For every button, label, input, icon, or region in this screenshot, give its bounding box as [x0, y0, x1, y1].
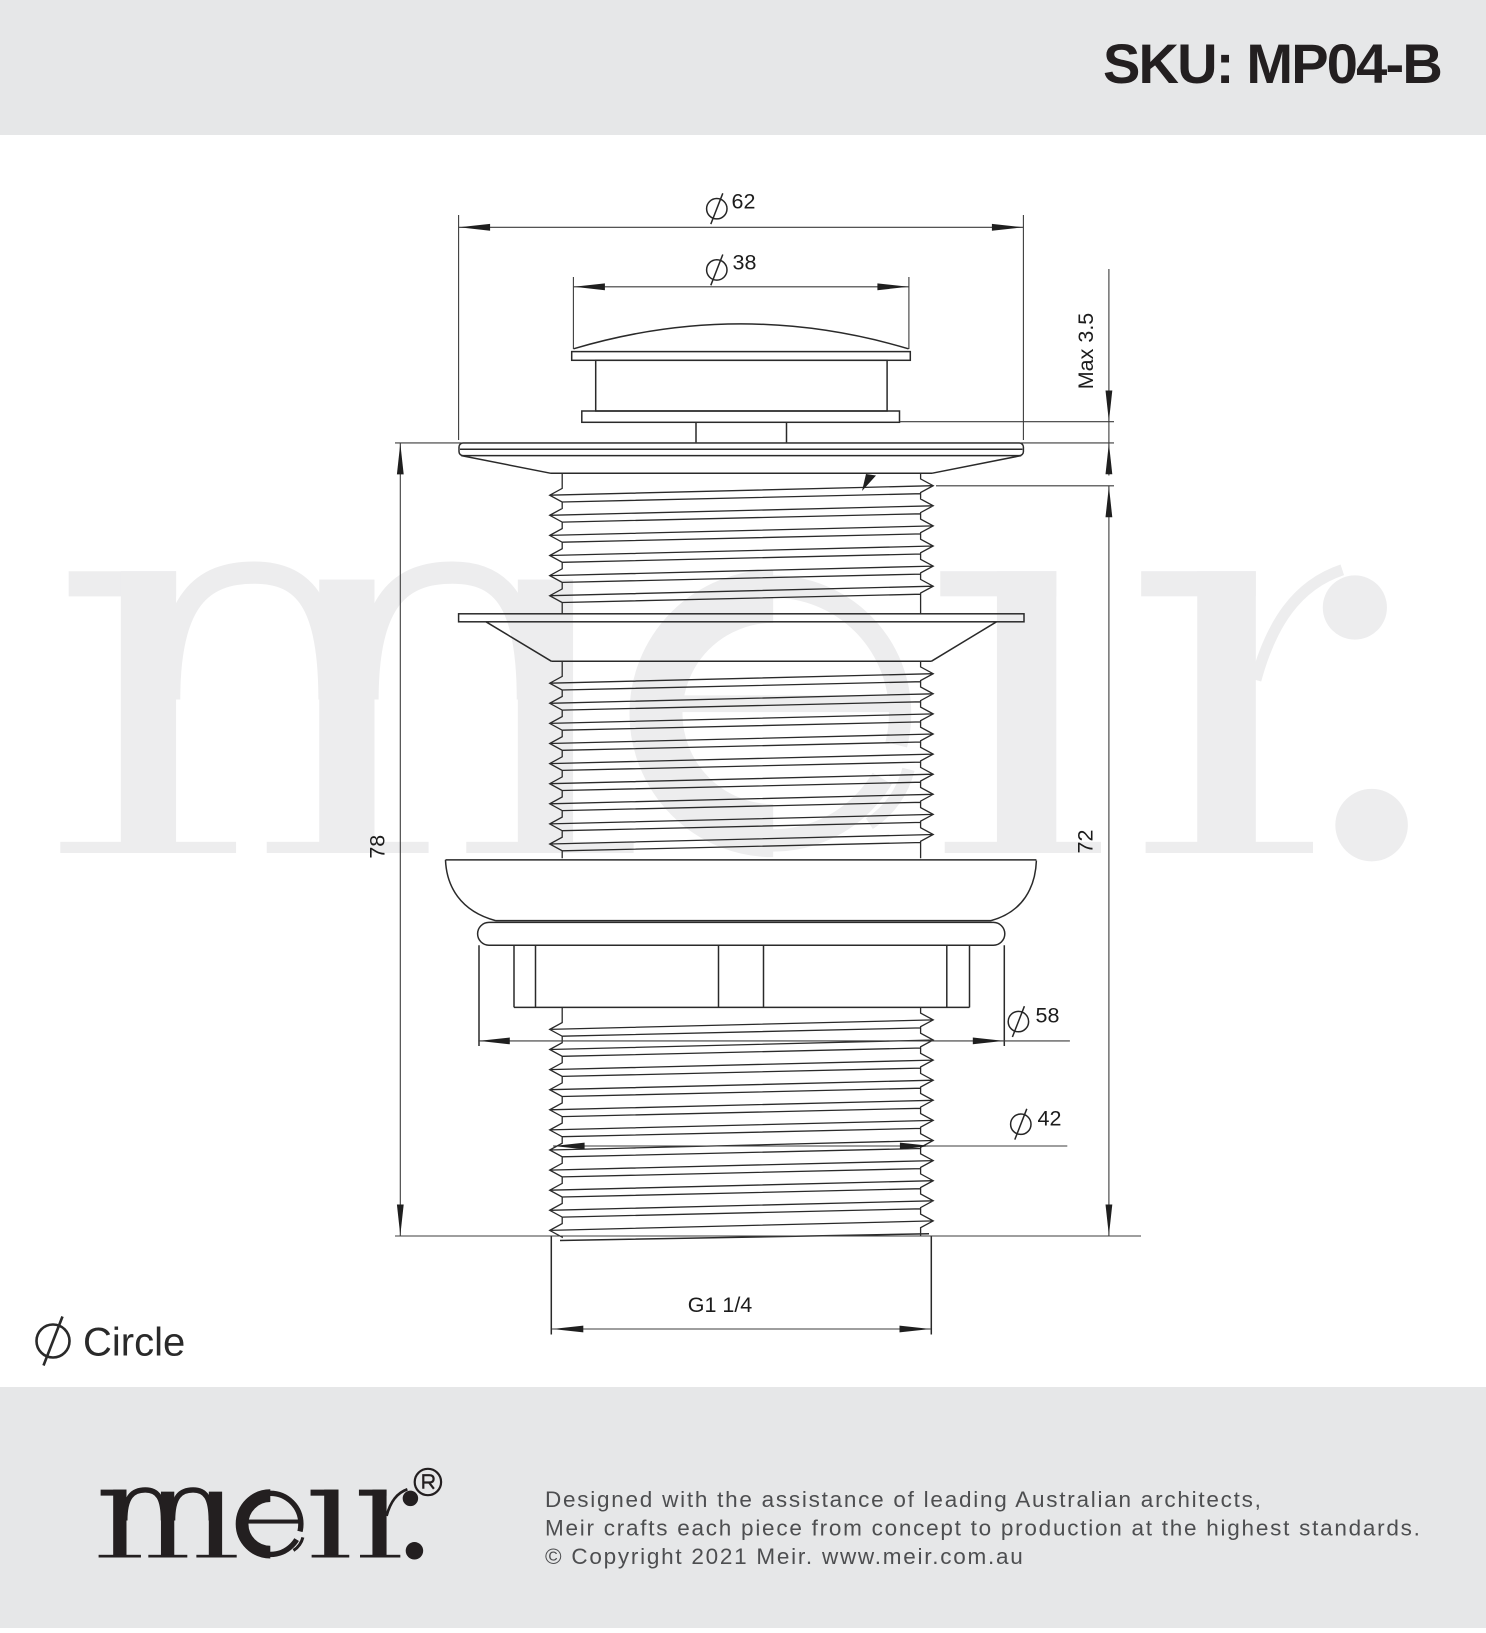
- svg-text:SKU: MP04-B: SKU: MP04-B: [1103, 32, 1441, 95]
- svg-text:38: 38: [733, 250, 757, 274]
- svg-text:78: 78: [366, 835, 390, 859]
- svg-text:42: 42: [1038, 1107, 1062, 1131]
- svg-text:G1 1/4: G1 1/4: [688, 1293, 753, 1317]
- svg-text:Max 3.5: Max 3.5: [1074, 313, 1098, 390]
- svg-text:Circle: Circle: [83, 1321, 185, 1365]
- svg-text:© Copyright 2021 Meir. www.mei: © Copyright 2021 Meir. www.meir.com.au: [545, 1544, 1025, 1569]
- svg-text:62: 62: [732, 189, 756, 213]
- svg-text:72: 72: [1074, 830, 1098, 854]
- svg-text:58: 58: [1036, 1003, 1060, 1027]
- svg-text:Designed with the assistance o: Designed with the assistance of leading …: [545, 1487, 1263, 1512]
- svg-text:Meir crafts each piece from co: Meir crafts each piece from concept to p…: [545, 1516, 1422, 1541]
